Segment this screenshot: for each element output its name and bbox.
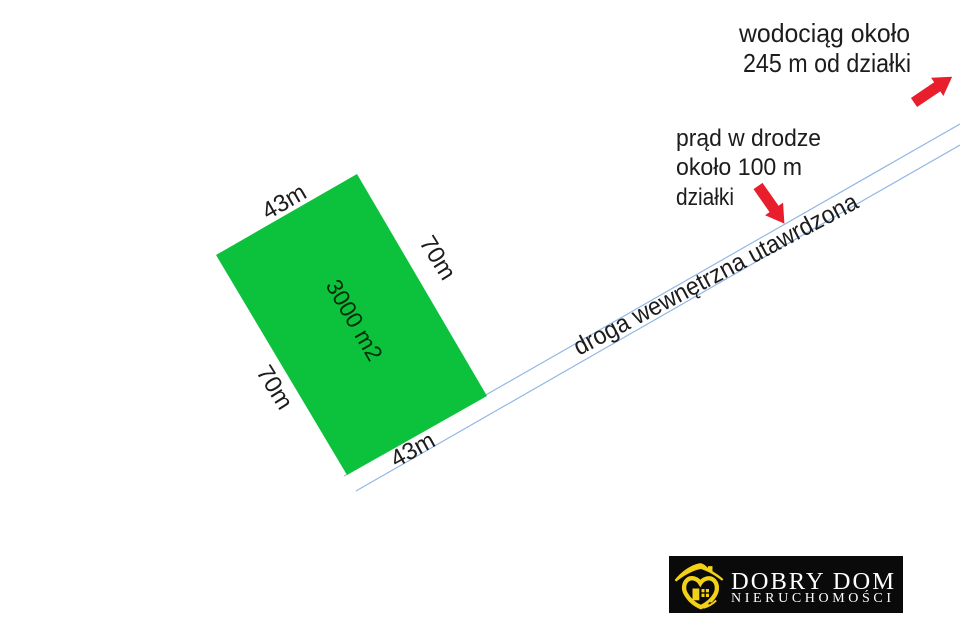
svg-text:działki: działki bbox=[676, 184, 734, 211]
svg-text:245 m od działki: 245 m od działki bbox=[743, 48, 911, 78]
svg-text:prąd w drodze: prąd w drodze bbox=[676, 125, 821, 152]
svg-text:wodociąg około: wodociąg około bbox=[738, 18, 910, 48]
svg-text:około 100 m: około 100 m bbox=[676, 154, 802, 181]
svg-text:70m: 70m bbox=[414, 231, 462, 285]
svg-text:NIERUCHOMOŚCI: NIERUCHOMOŚCI bbox=[731, 589, 891, 606]
svg-text:droga wewnętrzna utawrdzona: droga wewnętrzna utawrdzona bbox=[569, 188, 863, 362]
